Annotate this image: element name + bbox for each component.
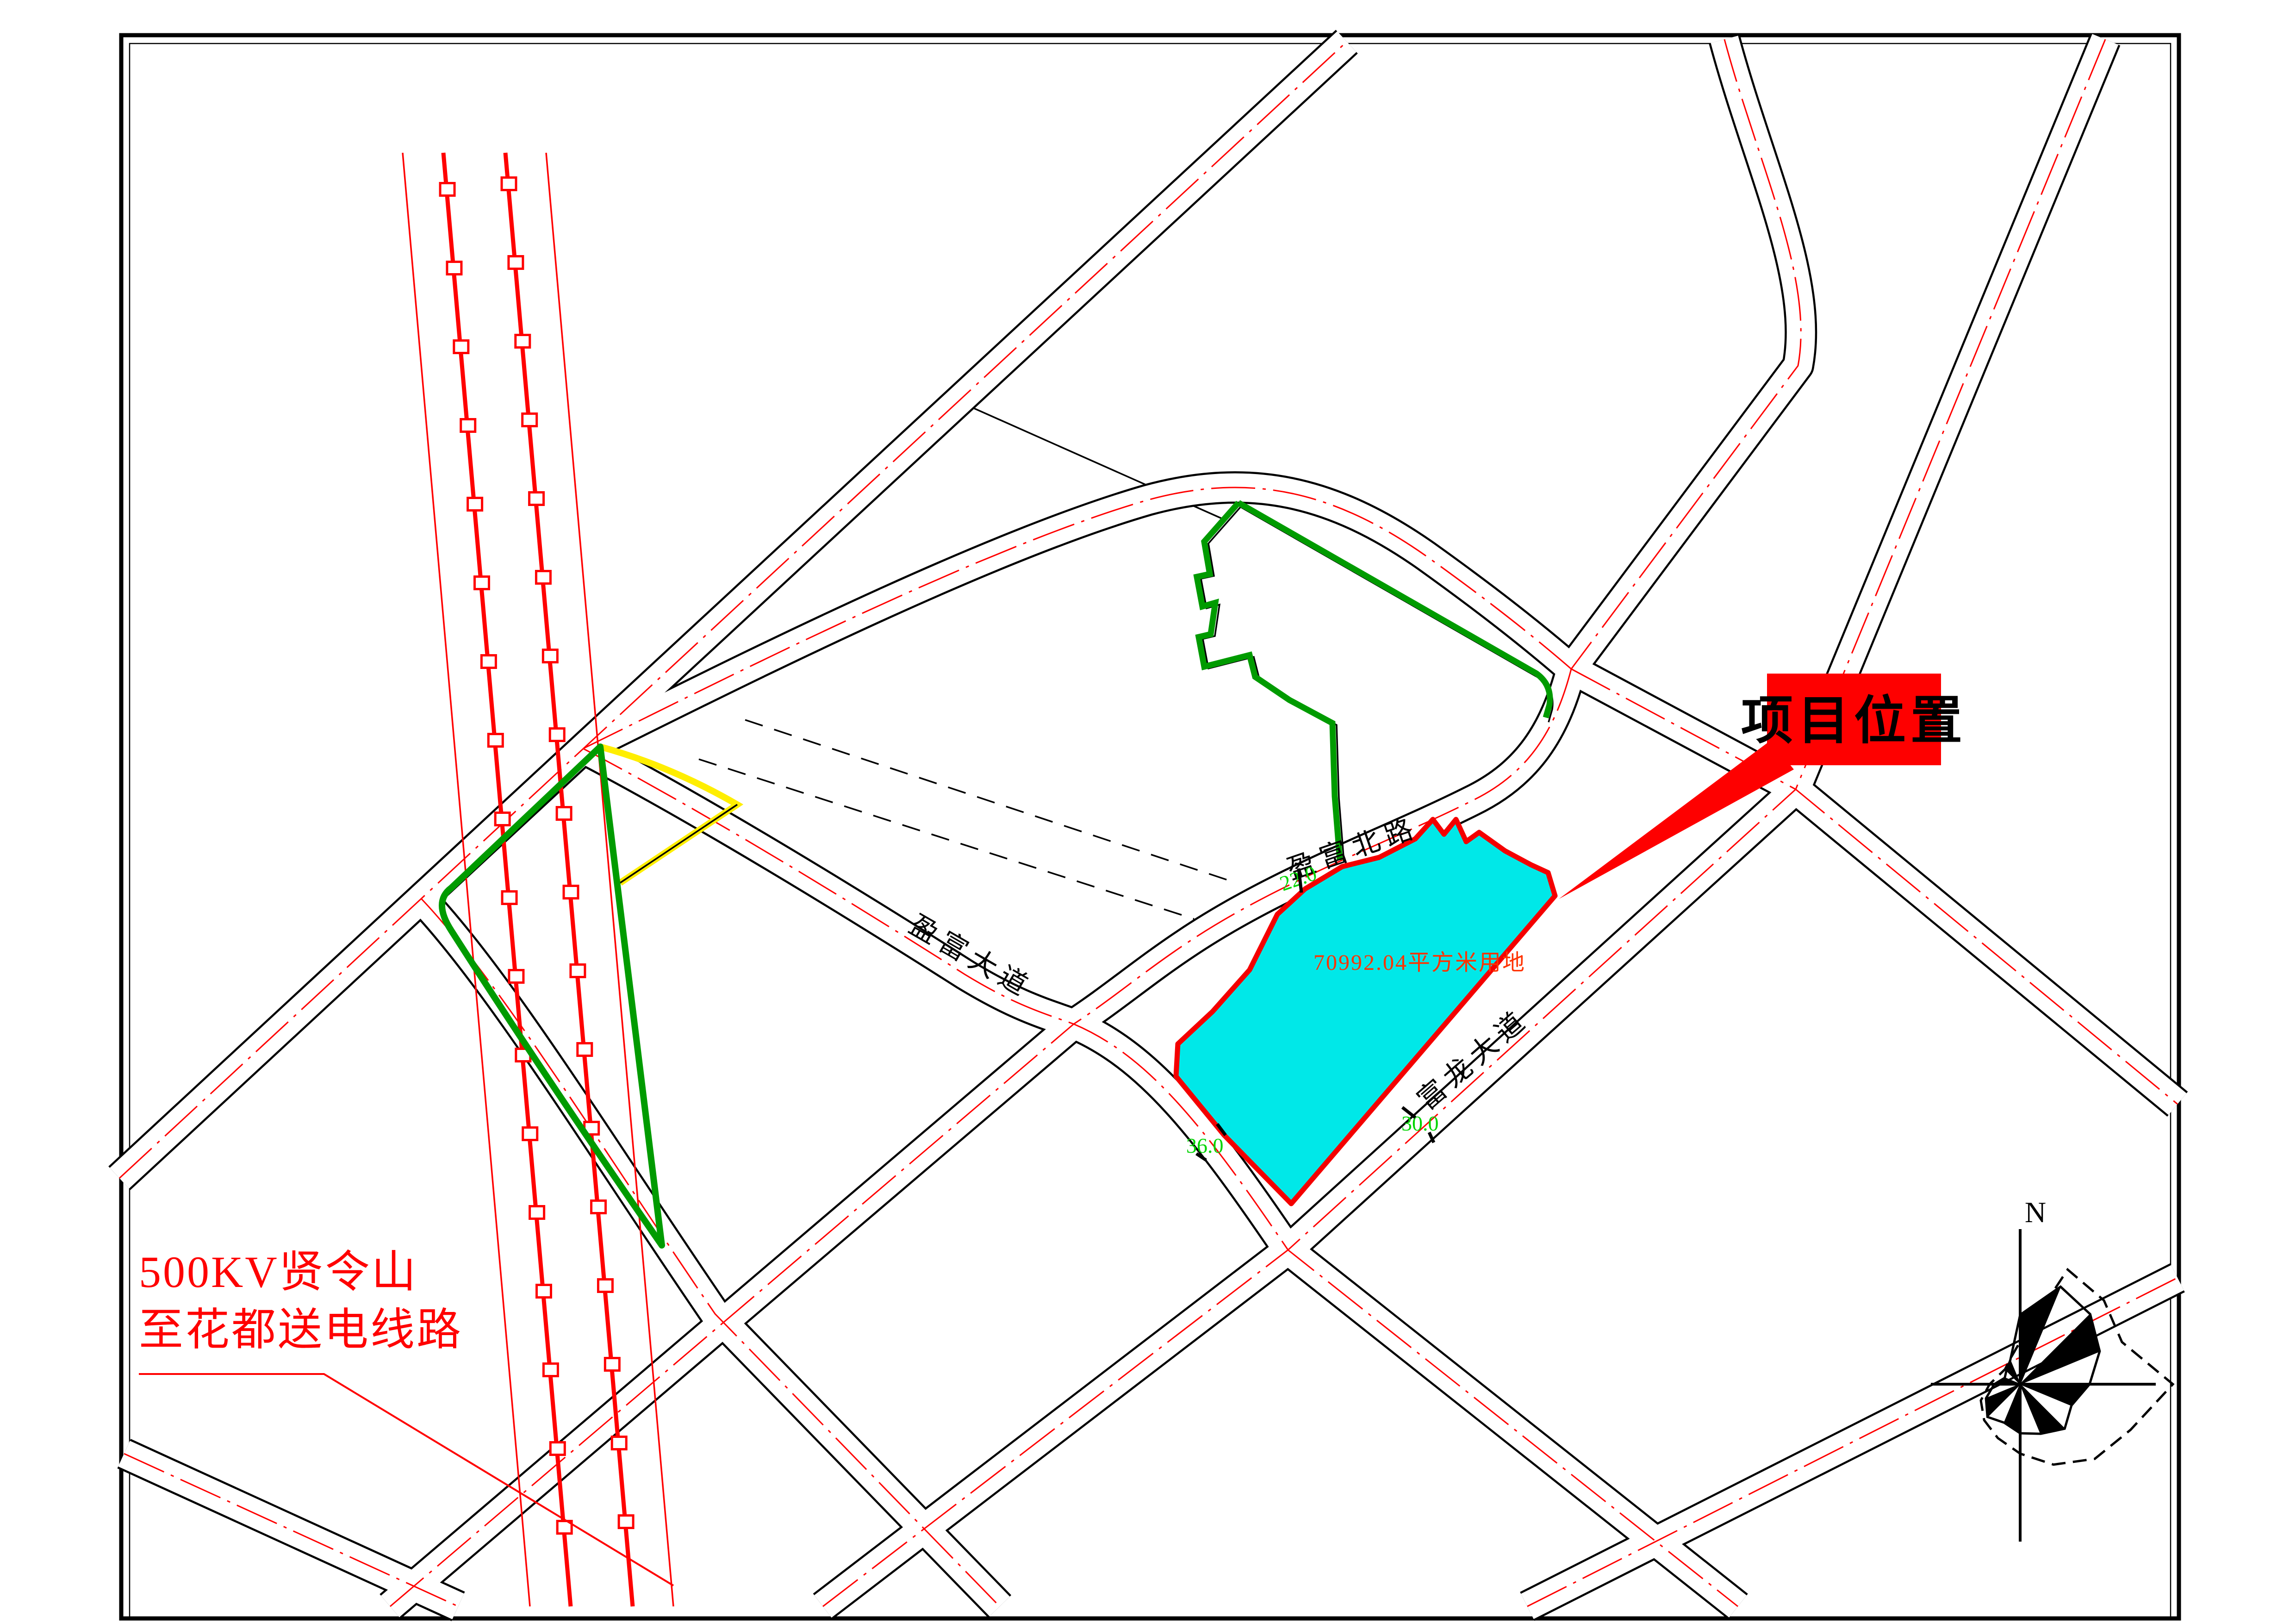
powerline-tower-square [502,178,516,190]
powerline-tower-square [481,656,496,668]
project-parcel [1176,819,1555,1204]
powerline-4 [546,153,673,1606]
powerline-tower-square [591,1201,606,1213]
drawing-frame [121,35,2179,1618]
powerline-tower-square [447,262,461,275]
powerline-tower-square [550,1443,565,1455]
powerline-tower-square [612,1437,626,1449]
powerline-tower-square [619,1516,633,1528]
powerline-tower-square [578,1043,592,1056]
powerline-tower-square [557,807,571,820]
powerline-tower-square [468,498,482,511]
green-zigzag-boundary [1197,503,1553,862]
powerline-tower-square [509,256,523,269]
powerline-tower-square [523,1128,537,1140]
powerline-tower-square [502,892,516,904]
powerline-tower-square [440,183,454,196]
powerline-tower-square [454,341,468,353]
powerline-tower-square [550,729,564,741]
project-label: 项目位置 [1741,693,1967,750]
powerline-tower-square [571,965,585,977]
powerline-tower-square [495,813,510,825]
powerline-tower-square [523,414,537,426]
width-label-36: 36.0 [1186,1134,1224,1157]
powerline-tower-square [564,886,578,899]
powerline-tower-square [543,650,557,662]
width-label-30: 30.0 [1401,1112,1439,1135]
lot-boundary-dashed-lines [699,720,1233,919]
powerline-tower-square [475,577,489,589]
powerline-tower-square [530,1206,544,1219]
powerline-label-line2: 至花都送电线路 [139,1305,463,1355]
powerline-tower-square [488,734,503,747]
powerline-tower-square [509,970,523,983]
compass-rose [1931,1229,2173,1542]
parcel-area-label: 70992.04平方米用地 [1313,950,1526,975]
site-plan-canvas: 项目位置 70992.04平方米用地 盈富北路 盈富大道 富龙大道 22.0 3… [0,0,2296,1624]
road-surfaces [119,39,2178,1606]
powerline-tower-square [536,571,550,584]
powerline-tower-square [543,1364,558,1376]
powerline-tower-square [516,335,530,348]
powerline-tower-square [598,1280,612,1292]
powerline-tower-square [537,1285,551,1298]
powerline-tower-square [461,419,475,432]
powerline-label-line1: 500KV贤令山 [139,1247,418,1297]
compass-north-label: N [2025,1196,2046,1229]
powerline-tower-square [605,1358,619,1371]
powerline-tower-square [529,493,544,505]
